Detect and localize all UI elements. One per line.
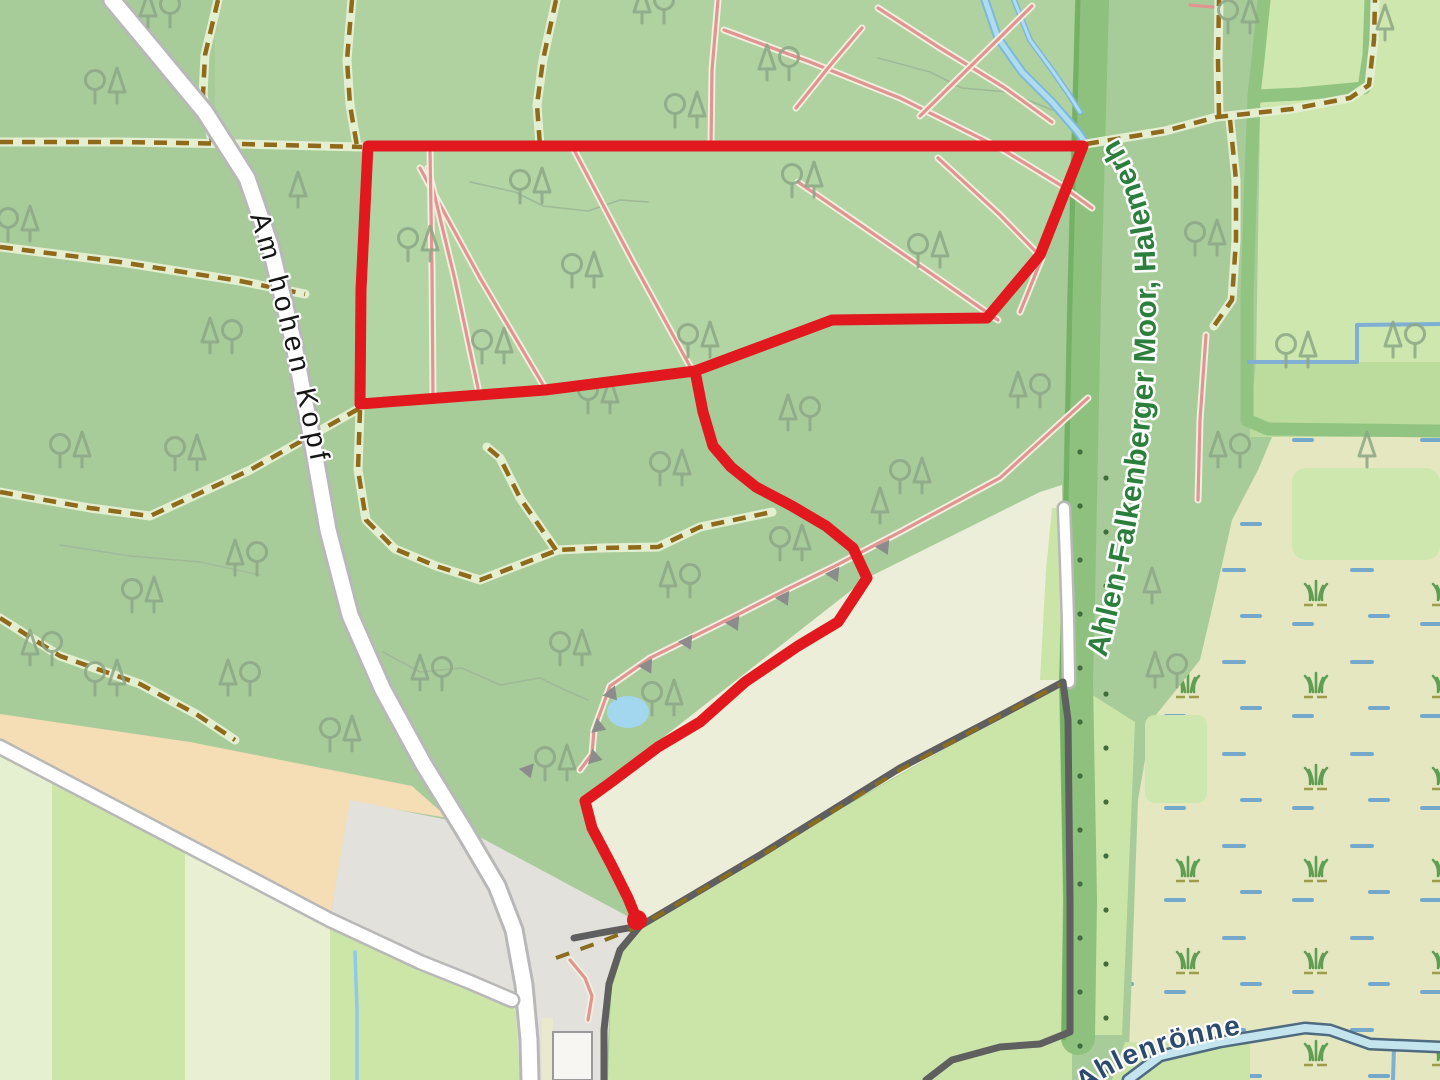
map-svg: Am hohen KopfAhlen-Falkenberger Moor, Ha… (0, 0, 1440, 1080)
trail-p (1190, 5, 1213, 7)
marsh-clearing-1 (1292, 468, 1440, 560)
farm-topright (1256, 0, 1440, 362)
route-endpoint-marker (627, 910, 647, 930)
ditch-bottomleft (355, 952, 357, 1080)
marsh-clearing-2 (1145, 715, 1207, 803)
field-strip-pale-1 (0, 748, 52, 1080)
road-stub-fill (1064, 508, 1069, 682)
building (553, 1032, 592, 1080)
map-canvas[interactable]: Am hohen Kopf Ahlen-Falkenberger Moor, H… (0, 0, 1440, 1080)
pond (607, 696, 649, 728)
building-yard (542, 1018, 553, 1080)
